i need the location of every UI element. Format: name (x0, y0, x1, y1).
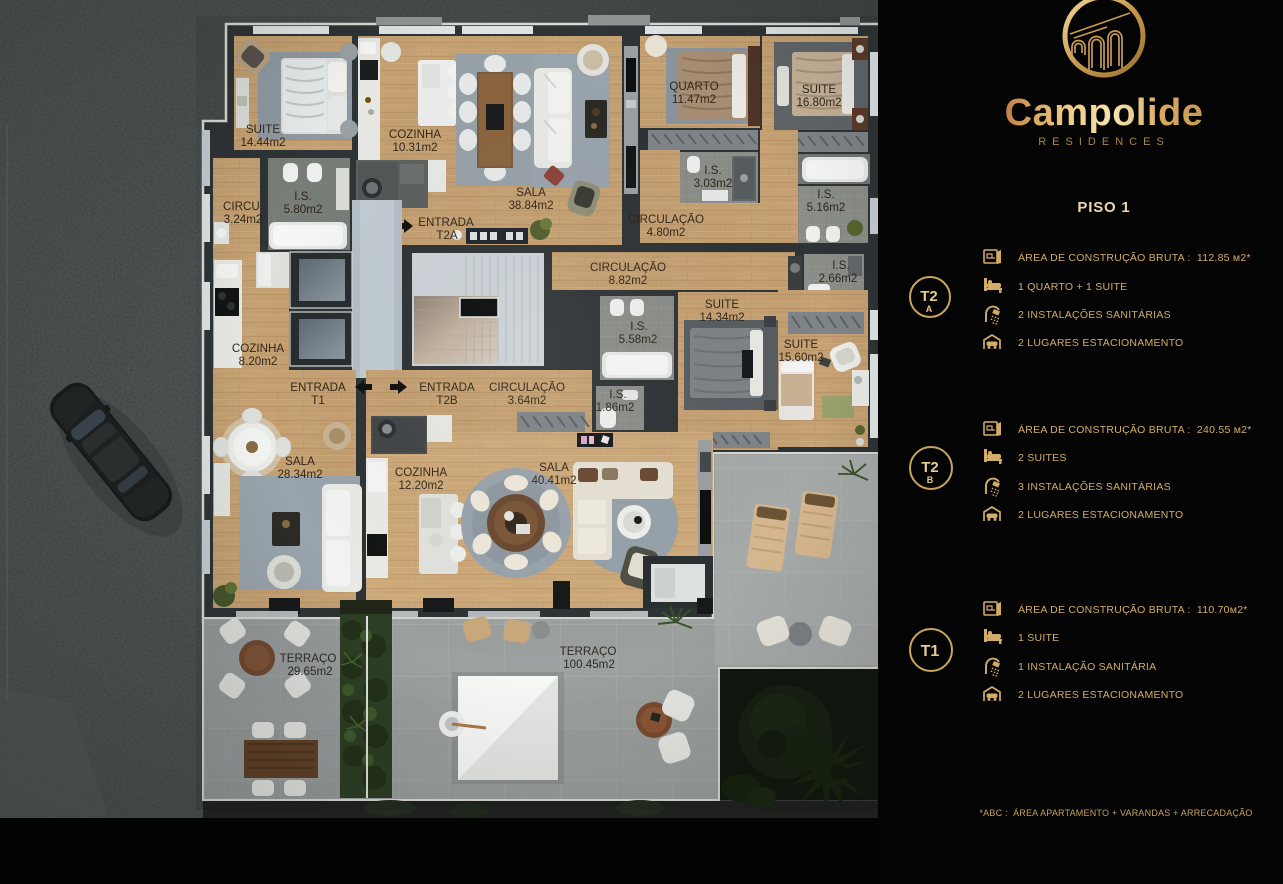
svg-text:T1: T1 (921, 643, 940, 660)
svg-text:ÁREA DE CONSTRUÇÃO BRUTA : 11: ÁREA DE CONSTRUÇÃO BRUTA : 110.70м2* (1018, 603, 1248, 616)
svg-text:T2: T2 (921, 459, 939, 476)
svg-text:2 SUITES: 2 SUITES (1018, 452, 1067, 464)
svg-text:ÁREA DE CONSTRUÇÃO BRUTA : 24: ÁREA DE CONSTRUÇÃO BRUTA : 240.55 м2* (1018, 423, 1252, 436)
svg-text:2 INSTALAÇÕES SANITÁRIAS: 2 INSTALAÇÕES SANITÁRIAS (1018, 308, 1171, 321)
svg-text:*ABC : ÁREA APARTAMENTO + VAR: *ABC : ÁREA APARTAMENTO + VARANDAS + ARR… (979, 808, 1252, 818)
svg-text:Campolide: Campolide (1005, 92, 1204, 134)
svg-text:A: A (926, 304, 933, 314)
svg-text:B: B (927, 475, 934, 485)
svg-text:PISO 1: PISO 1 (1077, 199, 1130, 216)
svg-text:2 LUGARES ESTACIONAMENTO: 2 LUGARES ESTACIONAMENTO (1018, 689, 1183, 701)
svg-text:RESIDENCES: RESIDENCES (1038, 136, 1170, 148)
svg-text:2 LUGARES ESTACIONAMENTO: 2 LUGARES ESTACIONAMENTO (1018, 509, 1183, 521)
svg-text:1 INSTALAÇÃO SANITÁRIA: 1 INSTALAÇÃO SANITÁRIA (1018, 660, 1156, 673)
svg-text:2 LUGARES ESTACIONAMENTO: 2 LUGARES ESTACIONAMENTO (1018, 337, 1183, 349)
svg-text:1 QUARTO + 1 SUITE: 1 QUARTO + 1 SUITE (1018, 281, 1127, 293)
svg-text:1 SUITE: 1 SUITE (1018, 632, 1059, 644)
svg-text:ÁREA DE CONSTRUÇÃO BRUTA : 11: ÁREA DE CONSTRUÇÃO BRUTA : 112.85 м2* (1018, 251, 1251, 264)
svg-text:T2: T2 (920, 288, 938, 305)
svg-text:3 INSTALAÇÕES SANITÁRIAS: 3 INSTALAÇÕES SANITÁRIAS (1018, 480, 1171, 493)
